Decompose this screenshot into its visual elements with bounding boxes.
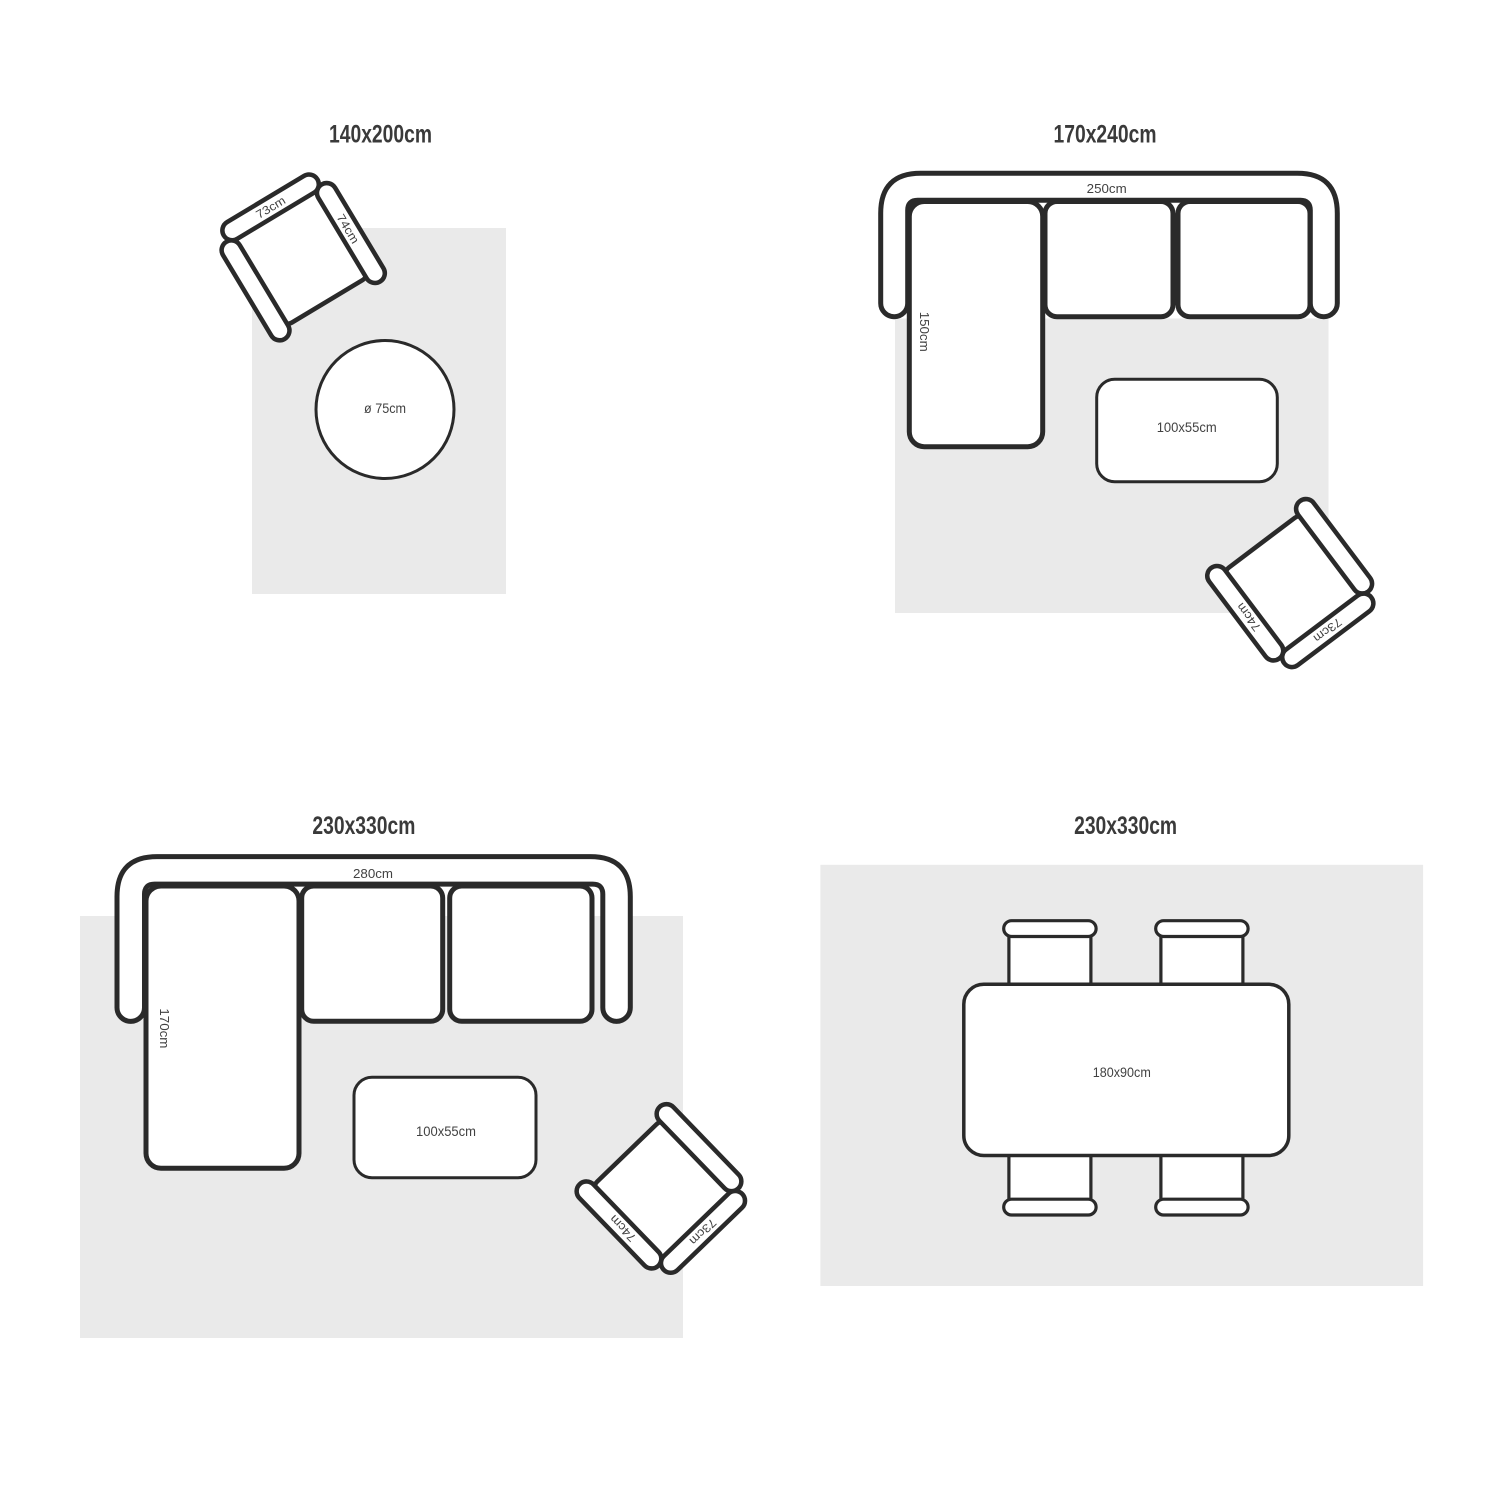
svg-text:180x90cm: 180x90cm	[1093, 1065, 1151, 1080]
svg-text:230x330cm: 230x330cm	[312, 812, 415, 840]
svg-text:170x240cm: 170x240cm	[1054, 121, 1157, 149]
svg-text:150cm: 150cm	[917, 312, 932, 352]
svg-text:230x330cm: 230x330cm	[1074, 812, 1177, 840]
svg-text:100x55cm: 100x55cm	[416, 1124, 476, 1139]
svg-text:100x55cm: 100x55cm	[1157, 420, 1217, 435]
svg-text:ø 75cm: ø 75cm	[364, 401, 406, 416]
svg-text:250cm: 250cm	[1087, 181, 1127, 196]
svg-text:280cm: 280cm	[353, 866, 393, 881]
svg-text:170cm: 170cm	[157, 1008, 172, 1048]
svg-text:140x200cm: 140x200cm	[329, 121, 432, 149]
